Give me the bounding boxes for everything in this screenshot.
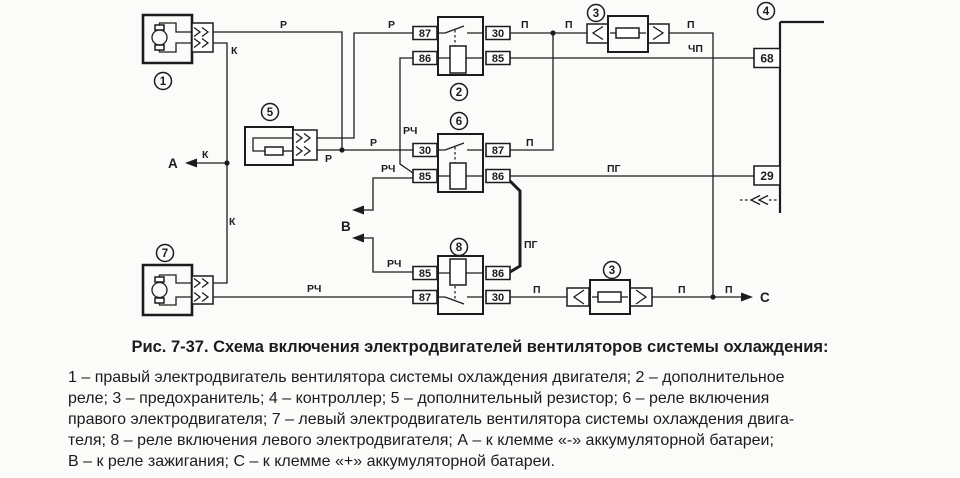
motor-armature-icon (152, 30, 167, 45)
terminal-label-r2_86: 86 (419, 53, 431, 65)
wire-label-rch1: РЧ (403, 125, 417, 137)
wiring-diagram: 68 29 878630853085878685878630123456783Р… (0, 0, 960, 332)
motor-brush-icon (155, 45, 164, 50)
double-chevron-icon (740, 196, 778, 205)
point-label-a: А (168, 156, 178, 171)
fuse-connector (587, 24, 608, 43)
wire-label-p3: Р (370, 137, 377, 149)
wire-label-pi6: П (678, 284, 686, 296)
legend-line: 1 – правый электродвигатель вентилятора … (68, 367, 898, 388)
point-label-b: В (341, 219, 351, 234)
wire-pi-fuse-down (669, 33, 713, 297)
resistor-5-connector (293, 130, 317, 160)
callout-number-c8: 8 (456, 242, 463, 254)
controller-4: 68 29 (740, 22, 824, 213)
motor-7-connector (192, 276, 213, 304)
double-chevron-right (759, 196, 768, 205)
callout-number-c3b: 3 (609, 265, 615, 277)
fuse-connector (630, 288, 652, 306)
wire-rch-relay6-to-b (354, 178, 413, 210)
terminal-label-r8_85: 85 (419, 268, 431, 280)
callout-number-c7: 7 (162, 248, 168, 260)
controller-bus-line (780, 22, 824, 213)
motor-1-connector (192, 23, 213, 52)
relay-coil-icon (450, 46, 466, 73)
relay-2 (438, 17, 483, 75)
legend-line: реле; 3 – предохранитель; 4 – контроллер… (68, 388, 898, 409)
terminal-label-r6_86: 86 (492, 171, 504, 183)
fuse-connector (648, 24, 669, 43)
wire-label-pi2: П (565, 19, 573, 31)
wire-label-pg2: ПГ (524, 239, 538, 251)
terminal-label-r2_30: 30 (492, 28, 504, 40)
wire-label-pi1: П (521, 19, 529, 31)
terminal-label-r8_30: 30 (492, 292, 504, 304)
motor-armature-icon (152, 283, 167, 298)
fuse-element-icon (598, 292, 621, 302)
fuse-bottom (567, 280, 652, 314)
junction-dot (339, 147, 344, 152)
junction-dot (710, 294, 715, 299)
relay-switch-icon (438, 26, 483, 33)
resistor-5-body (245, 127, 293, 165)
arrow-left-icon-a (185, 159, 197, 168)
callout-number-c4: 4 (763, 6, 770, 18)
figure-page: 68 29 878630853085878685878630123456783Р… (0, 0, 960, 478)
relay-switch-icon (438, 143, 483, 150)
legend-line: В – к реле зажигания; С – к клемме «+» а… (68, 451, 898, 472)
wire-label-pi7: П (725, 284, 733, 296)
callout-number-c2: 2 (456, 87, 462, 99)
callout-number-c5: 5 (267, 107, 274, 119)
callout-number-c3a: 3 (593, 8, 599, 20)
motor-7 (143, 265, 213, 315)
wire-label-chp: ЧП (688, 43, 703, 55)
motor-brush-icon (155, 298, 164, 303)
legend-line: правого электродвигателя; 7 – левый элек… (68, 409, 898, 430)
wire-label-rch2: РЧ (381, 163, 395, 175)
controller-pin-68: 68 (760, 52, 774, 66)
arrow-left-icon-b1 (352, 206, 364, 215)
junction-dots (224, 30, 715, 299)
fuse-element-icon (616, 28, 639, 38)
wire-pg-link (510, 181, 520, 272)
wire-p-resistor-high (317, 33, 413, 138)
arrow-right-icon-c (741, 293, 753, 302)
point-label-c: С (760, 290, 770, 305)
terminal-label-r8_86: 86 (492, 268, 504, 280)
relay-6 (438, 134, 483, 192)
wire-label-pi4: П (526, 137, 534, 149)
wire-label-rch4: РЧ (307, 283, 321, 295)
arrow-left-icon-b2 (352, 234, 364, 243)
wire-label-pi3: П (687, 19, 695, 31)
arrows (185, 159, 753, 302)
wire-label-p2: Р (388, 19, 395, 31)
relay-switch-icon (438, 297, 483, 304)
terminal-label-r2_85: 85 (492, 53, 504, 65)
motor-brush-icon (155, 25, 164, 30)
resistor-element-icon (265, 147, 283, 155)
figure-legend: 1 – правый электродвигатель вентилятора … (68, 367, 898, 472)
resistor-5 (245, 127, 317, 165)
wire-label-pi5: П (533, 284, 541, 296)
fuse-connector (567, 288, 589, 306)
legend-line: теля; 8 – реле включения левого электрод… (68, 430, 898, 451)
callout-number-c1: 1 (160, 76, 167, 88)
terminal-label-r6_30: 30 (419, 145, 431, 157)
wire-label-p1: Р (280, 19, 287, 31)
wire-label-p4: Р (325, 153, 332, 165)
wire-pi-to-relay6 (509, 33, 553, 150)
controller-pin-29: 29 (760, 169, 774, 183)
junction-dot (550, 30, 555, 35)
wire-label-k2: К (202, 149, 209, 161)
connector-body (192, 276, 213, 304)
wire-label-k3: К (229, 216, 236, 228)
relay-coil-icon (450, 163, 466, 189)
relay-8 (438, 256, 483, 314)
terminal-label-r8_87: 87 (419, 292, 431, 304)
wire-rch-b-to-relay8 (354, 238, 413, 272)
motor-brush-icon (155, 277, 164, 282)
relay-coil-icon (450, 259, 466, 285)
wire-label-rch3: РЧ (387, 258, 401, 270)
terminal-label-r2_87: 87 (419, 28, 431, 40)
motor-1 (143, 15, 213, 63)
terminal-label-r6_87: 87 (492, 145, 504, 157)
wire-label-k1: К (231, 45, 238, 57)
callout-number-c6: 6 (456, 116, 462, 128)
figure-caption: Рис. 7-37. Схема включения электродвигат… (0, 338, 960, 357)
wire-label-pg1: ПГ (607, 163, 621, 175)
junction-dot (224, 160, 229, 165)
terminal-label-r6_85: 85 (419, 171, 431, 183)
